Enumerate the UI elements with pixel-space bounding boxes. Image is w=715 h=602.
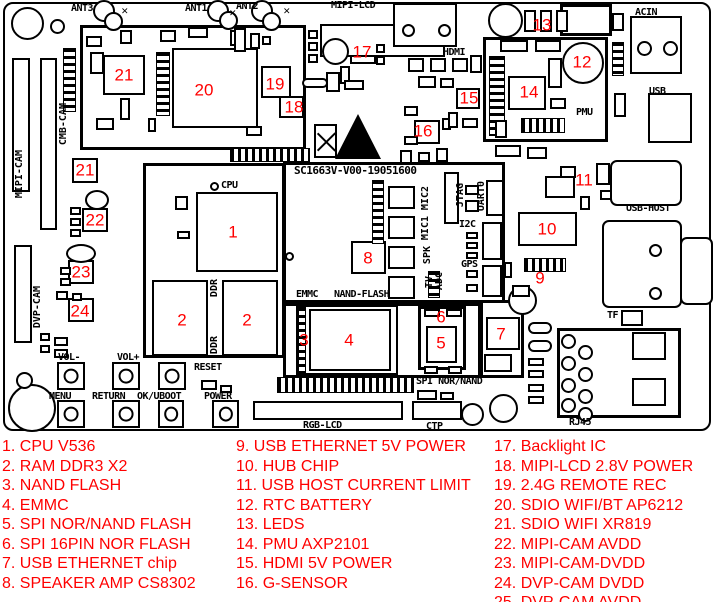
- mic1-connector: [388, 216, 415, 239]
- rj45-transformer: [632, 378, 666, 406]
- tv-connector: [388, 276, 415, 299]
- callout-16: 16: [414, 123, 433, 140]
- legend-item: 19. 2.4G REMOTE REC: [494, 476, 693, 496]
- ctp-connector: [412, 401, 462, 420]
- legend-item: 8. SPEAKER AMP CS8302: [2, 574, 196, 594]
- rj45-pin: [578, 345, 593, 360]
- component: [72, 293, 82, 301]
- board-label-emmc: EMMC: [296, 289, 318, 300]
- smd-cap: [66, 244, 96, 263]
- pin-array: [524, 258, 566, 272]
- rj45-pin: [561, 334, 576, 349]
- menu-button: [57, 400, 85, 428]
- component: [344, 80, 364, 90]
- callout-14: 14: [520, 84, 539, 101]
- component: [400, 150, 412, 164]
- component: [448, 112, 458, 128]
- ant2-pad: [262, 12, 281, 31]
- legend-item: 20. SDIO WIFI/BT AP6212: [494, 496, 693, 516]
- component: [418, 152, 430, 162]
- pin-array: [612, 42, 624, 76]
- board-label-pmu: PMU: [576, 107, 593, 118]
- legend-item: 11. USB HOST CURRENT LIMIT: [236, 476, 471, 496]
- board-label-mic1: MIC1: [420, 216, 431, 240]
- callout-7: 7: [496, 326, 505, 343]
- component: [527, 147, 547, 159]
- component: [40, 333, 50, 341]
- return-button: [112, 400, 140, 428]
- component: [600, 190, 612, 200]
- board-label-mipi-lcd: MIPI-LCD: [331, 0, 375, 11]
- component: [430, 58, 446, 72]
- uart0-connector: [486, 180, 504, 216]
- legend-item: 22. MIPI-CAM AVDD: [494, 535, 693, 555]
- component: [446, 309, 462, 317]
- board-label-i2c: I2C: [459, 219, 476, 230]
- legend-item: 23. MIPI-CAM-DVDD: [494, 554, 693, 574]
- board-label-ddr: DDR: [209, 336, 220, 354]
- component: [470, 55, 482, 73]
- wifi-chip-ap6212: [172, 48, 258, 128]
- component: [120, 98, 130, 120]
- legend-item: 15. HDMI 5V POWER: [236, 554, 471, 574]
- rgb-lcd-connector: [253, 401, 403, 420]
- callout-11: 11: [575, 172, 593, 189]
- component: [535, 40, 561, 52]
- legend-item: 24. DVP-CAM DVDD: [494, 574, 693, 594]
- component: [302, 78, 328, 88]
- mic2-connector: [388, 186, 415, 209]
- board-label-vol-: VOL+: [117, 352, 139, 363]
- vol-minus-button: [57, 362, 85, 390]
- board-label-vol-: VOL-: [58, 352, 80, 363]
- component: [308, 42, 318, 51]
- callout-23: 23: [72, 264, 91, 281]
- board-label-adc: ADC: [434, 272, 445, 290]
- callout-21: 21: [115, 67, 134, 84]
- callout-3: 3: [299, 332, 308, 349]
- component: [70, 207, 81, 215]
- component: [86, 36, 102, 47]
- spk-connector: [388, 246, 415, 269]
- board-label-rj45: RJ45: [569, 417, 591, 428]
- legend-item: 13. LEDS: [236, 515, 471, 535]
- rj45-pin: [561, 398, 576, 413]
- callout-5: 5: [436, 335, 445, 352]
- component: [448, 366, 462, 374]
- callout-19: 19: [266, 76, 285, 93]
- component: [548, 58, 562, 88]
- dvp-cam-connector: [14, 245, 32, 343]
- callout-9: 9: [535, 270, 544, 287]
- component: [436, 148, 448, 162]
- mounting-hole: [16, 372, 33, 389]
- board-label-ant2: ANT2: [236, 1, 258, 12]
- component: [418, 76, 436, 88]
- legend-item: 16. G-SENSOR: [236, 574, 471, 594]
- component: [528, 370, 544, 378]
- component: [504, 262, 512, 278]
- board-label-tf: TF: [607, 310, 618, 321]
- hdmi-screw-hole: [402, 24, 415, 37]
- board-label-acin: ACIN: [635, 7, 657, 18]
- legend-item: 12. RTC BATTERY: [236, 496, 471, 516]
- board-label-dvp-cam: DVP-CAM: [32, 286, 43, 328]
- i2c-pad: [466, 252, 478, 259]
- mounting-hole: [488, 3, 523, 38]
- component: [40, 345, 50, 353]
- usb-port: [648, 93, 692, 143]
- component: [424, 366, 438, 374]
- component: [462, 118, 478, 128]
- led: [556, 10, 568, 32]
- callout-18: 18: [285, 99, 304, 116]
- board-label-power: POWER: [204, 391, 232, 402]
- current-limit-chip: [545, 176, 575, 198]
- rj45-pin: [578, 367, 593, 382]
- component: [60, 267, 71, 275]
- legend-item: 18. MIPI-LCD 2.8V POWER: [494, 457, 693, 477]
- led: [528, 340, 552, 352]
- callout-1: 1: [228, 224, 237, 241]
- mipi-cam-connector: [40, 58, 57, 230]
- usb-host-port: [610, 160, 682, 206]
- component: [160, 30, 176, 42]
- component: [404, 106, 418, 116]
- board-label-cpu: CPU: [221, 180, 238, 191]
- legend-item: 5. SPI NOR/NAND FLASH: [2, 515, 196, 535]
- legend-column-2: 9. USB ETHERNET 5V POWER10. HUB CHIP11. …: [236, 437, 471, 593]
- antenna-x-mark: ✕: [283, 6, 291, 17]
- board-label-ddr: DDR: [209, 279, 220, 297]
- component: [614, 93, 626, 117]
- component: [246, 126, 262, 136]
- acin-pin: [637, 41, 652, 56]
- component: [177, 231, 190, 239]
- component: [500, 40, 528, 52]
- callout-8: 8: [363, 250, 372, 267]
- via: [285, 252, 294, 261]
- component: [56, 291, 68, 300]
- smd-cap: [85, 190, 109, 210]
- component: [612, 13, 624, 31]
- legend-column-1: 1. CPU V5362. RAM DDR3 X23. NAND FLASH4.…: [2, 437, 196, 593]
- pcb-diagram: SC1663V-V00-19051600 ✕✕✕ANT3ANT1ANT2MIPI…: [0, 0, 715, 602]
- component: [188, 27, 208, 38]
- legend-item: 10. HUB CHIP: [236, 457, 471, 477]
- component: [175, 196, 188, 210]
- component: [54, 337, 68, 346]
- board-label-cmb-cam: CMB-CAM: [58, 103, 69, 145]
- vol-plus-button: [112, 362, 140, 390]
- callout-10: 10: [538, 221, 557, 238]
- led: [528, 322, 552, 334]
- component: [512, 285, 530, 297]
- legend-item: 7. USB ETHERNET chip: [2, 554, 196, 574]
- component: [120, 30, 132, 44]
- component: [550, 98, 566, 109]
- component: [70, 229, 81, 237]
- component: [452, 58, 468, 72]
- component: [440, 78, 454, 88]
- component: [308, 54, 318, 63]
- board-id-text: SC1663V-V00-19051600: [294, 165, 416, 176]
- board-label-usb-host: USB-HOST: [626, 203, 670, 214]
- antenna-x-mark: ✕: [121, 6, 129, 17]
- mounting-hole: [11, 7, 44, 40]
- component: [482, 265, 502, 297]
- board-label-return: RETURN: [92, 391, 125, 402]
- legend-item: 17. Backlight IC: [494, 437, 693, 457]
- component: [308, 30, 318, 39]
- callout-20: 20: [195, 82, 214, 99]
- av-jack: [602, 220, 682, 308]
- board-label-ctp: CTP: [426, 421, 443, 432]
- reset-pad: [201, 380, 217, 390]
- component: [376, 56, 385, 65]
- board-label-nand-flash: NAND-FLASH: [334, 289, 389, 300]
- callout-22: 22: [86, 212, 105, 229]
- pin-array: [230, 148, 310, 162]
- board-label-ant3: ANT3: [71, 3, 93, 14]
- callout-2: 2: [242, 312, 251, 329]
- component: [250, 33, 260, 49]
- callout-12: 12: [573, 54, 592, 71]
- callout-21: 21: [76, 162, 95, 179]
- board-label-rgb-lcd: RGB-LCD: [303, 420, 342, 431]
- legend-item: 14. PMU AXP2101: [236, 535, 471, 555]
- component: [495, 120, 507, 138]
- av-pin: [649, 244, 662, 257]
- component: [417, 390, 437, 400]
- legend-item: 9. USB ETHERNET 5V POWER: [236, 437, 471, 457]
- av-jack-bumps: [680, 237, 713, 305]
- callout-6: 6: [436, 309, 445, 326]
- gps-pad: [466, 284, 478, 292]
- component: [70, 218, 81, 226]
- board-label-mic2: MIC2: [420, 186, 431, 210]
- component: [60, 278, 71, 286]
- rj45-pin: [561, 356, 576, 371]
- legend-item: 4. EMMC: [2, 496, 196, 516]
- legend-item: 2. RAM DDR3 X2: [2, 457, 196, 477]
- callout-24: 24: [71, 303, 90, 320]
- rgb-lcd-pins: [277, 377, 414, 393]
- component: [495, 145, 521, 157]
- esd-warning-triangle: [335, 114, 381, 159]
- pin-array: [156, 52, 170, 116]
- board-label-spk: SPK: [422, 246, 433, 264]
- board-label-reset: RESET: [194, 362, 222, 373]
- board-label-gps: GPS: [461, 259, 478, 270]
- component: [376, 44, 385, 53]
- pin-array: [372, 180, 384, 244]
- callout-15: 15: [460, 90, 479, 107]
- board-label-jtag: JTAG: [455, 183, 466, 207]
- component: [234, 28, 246, 52]
- callout-13: 13: [533, 17, 552, 34]
- power-button: [212, 400, 239, 428]
- capacitor: [322, 38, 349, 65]
- board-label-uart0: UART0: [476, 181, 487, 211]
- legend-item: 3. NAND FLASH: [2, 476, 196, 496]
- rj45-pin: [578, 389, 593, 404]
- board-label-spi-nor-nand: SPI NOR/NAND: [416, 376, 482, 387]
- component: [528, 396, 544, 404]
- component: [148, 118, 156, 132]
- mounting-hole: [489, 394, 518, 423]
- component: [96, 118, 114, 130]
- component: [90, 52, 104, 74]
- hdmi-screw-hole: [438, 24, 451, 37]
- board-label-hdmi: HDMI: [443, 47, 465, 58]
- component: [528, 384, 544, 392]
- component: [262, 36, 271, 45]
- component: [326, 72, 340, 92]
- board-label-ant1: ANT1: [185, 3, 207, 14]
- board-label-menu: MENU: [49, 391, 71, 402]
- callout-4: 4: [344, 332, 353, 349]
- av-pin: [649, 287, 662, 300]
- component: [580, 196, 590, 210]
- gps-pad: [466, 270, 478, 278]
- legend-column-3: 17. Backlight IC18. MIPI-LCD 2.8V POWER1…: [494, 437, 693, 602]
- legend-item: 21. SDIO WIFI XR819: [494, 515, 693, 535]
- legend-item: 6. SPI 16PIN NOR FLASH: [2, 535, 196, 555]
- i2c-pad: [466, 242, 478, 249]
- legend-item: 25. DVP-CAM AVDD: [494, 593, 693, 602]
- acin-pin: [663, 41, 678, 56]
- tf-card-slot: [621, 310, 643, 326]
- component: [440, 392, 454, 400]
- cpu-marker: [210, 182, 219, 191]
- board-label-ok-uboot: OK/UBOOT: [137, 391, 181, 402]
- callout-17: 17: [353, 44, 372, 61]
- component: [528, 358, 544, 366]
- board-label-mipi-cam: MIPI-CAM: [14, 150, 25, 198]
- component: [484, 354, 512, 372]
- reset-button: [158, 362, 186, 390]
- i2c-pad: [466, 232, 478, 239]
- component: [482, 222, 502, 260]
- legend-item: 1. CPU V536: [2, 437, 196, 457]
- board-label-usb: USB: [649, 86, 666, 97]
- component: [596, 163, 610, 185]
- ok-uboot-button: [158, 400, 184, 428]
- pcb-board: SC1663V-V00-19051600 ✕✕✕ANT3ANT1ANT2MIPI…: [0, 0, 715, 433]
- callout-2: 2: [177, 312, 186, 329]
- pmu-pins: [521, 118, 565, 133]
- weee-bin-icon: [314, 124, 337, 158]
- rj45-pin: [561, 378, 576, 393]
- rj45-transformer: [632, 332, 666, 360]
- mounting-hole: [50, 19, 65, 34]
- component: [408, 58, 424, 72]
- mounting-hole: [461, 403, 484, 426]
